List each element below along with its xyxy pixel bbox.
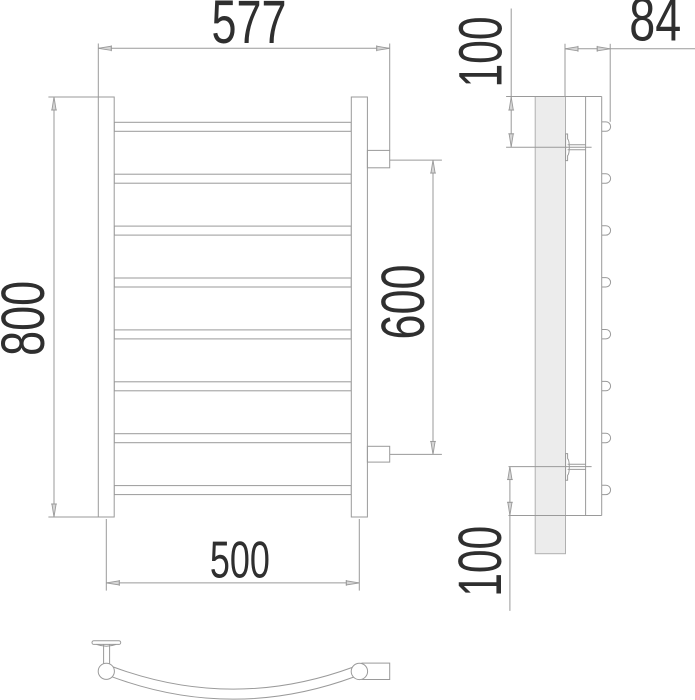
svg-text:600: 600	[369, 265, 438, 340]
svg-text:577: 577	[212, 0, 287, 57]
svg-text:84: 84	[629, 0, 681, 55]
svg-text:500: 500	[210, 530, 270, 588]
svg-text:800: 800	[0, 281, 58, 356]
svg-text:100: 100	[446, 526, 515, 597]
svg-text:100: 100	[446, 17, 515, 88]
